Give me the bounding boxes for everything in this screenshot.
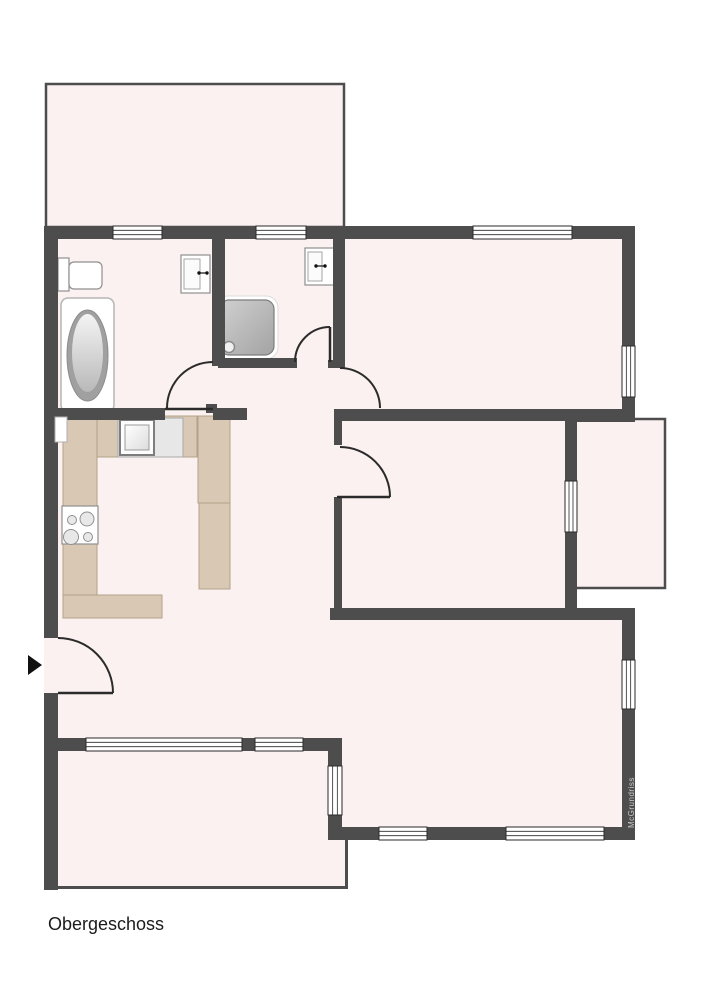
kitchen-counter-right-lower — [199, 503, 230, 589]
wall-thin-right-edge — [345, 840, 348, 889]
shower-drain-icon — [224, 342, 235, 353]
window — [506, 827, 604, 840]
wall-middle-room-left-stub — [334, 409, 342, 445]
kitchen-counter-bottom-leg — [63, 595, 162, 618]
wall-shower-room-bottom — [218, 358, 297, 368]
entrance-arrow-icon — [28, 655, 42, 675]
window — [622, 660, 635, 709]
watermark-label: McGrundriss — [627, 777, 636, 828]
stove-hob — [62, 506, 98, 545]
window — [256, 226, 306, 239]
toilet-tank — [58, 258, 69, 291]
floor-plan: Obergeschoss McGrundriss — [0, 0, 706, 1000]
wall-thin-bottom-edge — [58, 886, 348, 889]
kitchen-counter-right-upper — [198, 416, 230, 503]
room-fill-lower-left-extension — [44, 840, 348, 889]
window — [255, 738, 303, 751]
wall-niche — [55, 417, 67, 442]
bathroom-sink — [181, 255, 210, 293]
window — [379, 827, 427, 840]
window — [473, 226, 572, 239]
faucet-icon — [197, 271, 200, 274]
floor-title: Obergeschoss — [48, 914, 164, 934]
window — [328, 766, 342, 815]
toilet-bowl — [69, 262, 102, 289]
wall-mid-horizontal — [330, 608, 635, 620]
shower-room-sink — [305, 248, 335, 285]
wall-kitchen-top-left — [58, 408, 165, 420]
wall-top-right-room-bottom — [337, 409, 577, 421]
burner-icon — [84, 533, 93, 542]
faucet-icon — [323, 264, 326, 267]
balcony-right — [576, 419, 665, 588]
wall-bathroom-right — [212, 239, 225, 366]
wall-middle-room-left-lower — [334, 497, 342, 608]
toilet — [58, 258, 102, 291]
wall-left-lower — [44, 693, 58, 890]
burner-icon — [68, 516, 77, 525]
burner-icon — [80, 512, 94, 526]
window — [113, 226, 162, 239]
kitchen-sink-basin — [125, 425, 149, 450]
window — [622, 346, 635, 397]
burner-icon — [64, 530, 79, 545]
wall-kitchen-top-right — [213, 408, 247, 420]
faucet-icon — [205, 271, 208, 274]
faucet-icon — [314, 264, 317, 267]
floor-plan-page: Obergeschoss McGrundriss — [0, 0, 706, 1000]
balcony-top — [46, 84, 344, 227]
wall-shower-room-right — [333, 239, 345, 362]
bathtub-basin — [72, 314, 103, 392]
bathroom-sink-basin — [184, 259, 200, 289]
bathtub — [61, 298, 114, 412]
kitchen-sink — [118, 418, 183, 457]
window — [565, 481, 577, 532]
window — [86, 738, 242, 751]
shower — [216, 296, 278, 359]
